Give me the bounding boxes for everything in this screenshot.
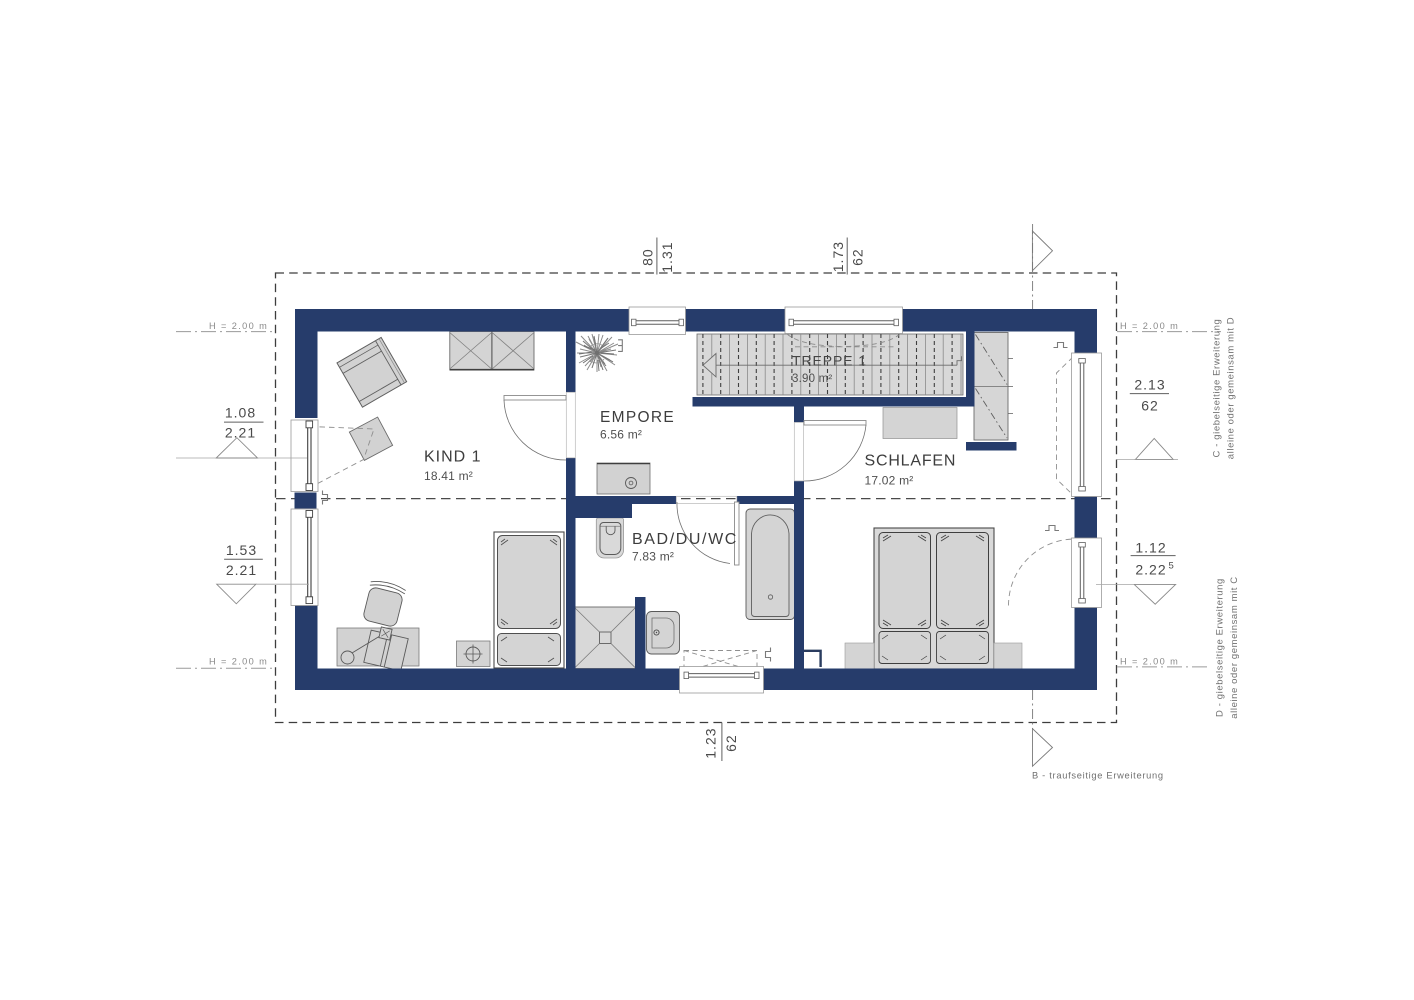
svg-text:KIND 1: KIND 1 — [424, 449, 482, 466]
svg-text:1.73: 1.73 — [830, 241, 846, 272]
svg-text:D - giebelseitige Erweiterung: D - giebelseitige Erweiterung — [1215, 578, 1226, 717]
svg-text:1.53: 1.53 — [226, 542, 257, 558]
svg-text:62: 62 — [723, 734, 739, 752]
svg-text:H = 2.00 m: H = 2.00 m — [1120, 657, 1179, 667]
svg-text:18.41 m²: 18.41 m² — [424, 469, 473, 483]
svg-text:62: 62 — [849, 248, 865, 266]
svg-text:H = 2.00 m: H = 2.00 m — [209, 657, 268, 667]
svg-text:2.13: 2.13 — [1134, 377, 1165, 393]
svg-text:TREPPE 1: TREPPE 1 — [792, 353, 867, 369]
svg-text:SCHLAFEN: SCHLAFEN — [865, 453, 957, 470]
svg-text:1.31: 1.31 — [659, 241, 675, 272]
svg-text:alleine oder gemeinsam mit D: alleine oder gemeinsam mit D — [1226, 317, 1237, 459]
svg-text:B - traufseitige Erweiterung: B - traufseitige Erweiterung — [1032, 771, 1164, 781]
svg-text:1.12: 1.12 — [1135, 540, 1166, 556]
svg-text:EMPORE: EMPORE — [600, 409, 675, 426]
svg-text:H = 2.00 m: H = 2.00 m — [1120, 321, 1179, 331]
svg-text:2.22: 2.22 — [1135, 561, 1166, 577]
svg-text:3.90 m²: 3.90 m² — [792, 373, 832, 385]
svg-text:6.56 m²: 6.56 m² — [600, 428, 642, 442]
svg-text:2.21: 2.21 — [225, 425, 256, 441]
svg-text:alleine oder gemeinsam mit C: alleine oder gemeinsam mit C — [1229, 576, 1240, 718]
svg-text:7.83 m²: 7.83 m² — [632, 550, 674, 564]
svg-text:BAD/DU/WC: BAD/DU/WC — [632, 531, 738, 548]
svg-text:62: 62 — [1141, 398, 1159, 414]
svg-text:1.08: 1.08 — [225, 405, 256, 421]
svg-text:H = 2.00 m: H = 2.00 m — [209, 321, 268, 331]
svg-text:80: 80 — [640, 248, 656, 266]
svg-text:C - giebelseitige Erweiterung: C - giebelseitige Erweiterung — [1212, 319, 1223, 458]
svg-text:1.23: 1.23 — [703, 727, 719, 758]
svg-text:2.21: 2.21 — [226, 562, 257, 578]
svg-text:5: 5 — [1169, 561, 1174, 572]
svg-text:17.02 m²: 17.02 m² — [865, 474, 914, 488]
